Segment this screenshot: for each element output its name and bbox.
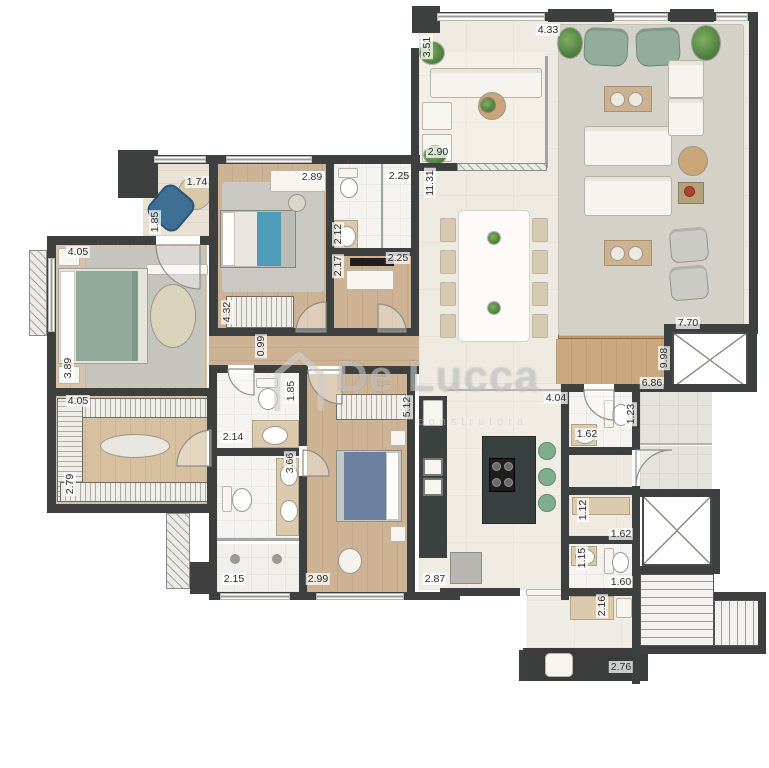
burner-4 <box>504 478 513 487</box>
burner-2 <box>504 462 513 471</box>
mbath-sink-2 <box>280 500 298 522</box>
mini-hall-floor <box>569 455 632 488</box>
master-bench <box>150 284 196 348</box>
living-armchair-gray-1 <box>669 226 710 263</box>
bedroom2-teal-blanket <box>257 212 281 266</box>
elevator-shaft-1 <box>672 332 748 388</box>
dimension-label: 3.51 <box>421 35 433 59</box>
ledge-bottom-left <box>166 513 190 589</box>
bath1-toilet <box>340 178 358 198</box>
sbath-toilet <box>612 552 629 573</box>
dimension-label: 4.32 <box>221 300 233 324</box>
door-gap-wc <box>584 384 614 392</box>
dimension-label: 2.25 <box>387 170 411 182</box>
column-top-right <box>670 9 714 22</box>
dimension-label: 3.89 <box>62 356 74 380</box>
bath1-glass <box>381 163 383 252</box>
dimension-label: 2.89 <box>300 171 324 183</box>
dimension-label: 1.23 <box>625 402 637 426</box>
window-bedroom2 <box>226 156 312 163</box>
mbath-toilet <box>232 488 252 512</box>
master-pillows <box>60 271 75 361</box>
wall-kitchen-bottom <box>440 588 520 596</box>
dining-chair-8 <box>532 314 548 338</box>
shower-head-2 <box>230 554 240 564</box>
dimension-label: 4.04 <box>544 392 568 404</box>
dining-chair-3 <box>440 282 456 306</box>
dimension-label: 1.62 <box>575 428 599 440</box>
core-hall-floor-1 <box>640 392 712 444</box>
closet-island-bench <box>100 434 170 458</box>
dimension-label: 1.62 <box>609 528 633 540</box>
dimension-label: 2.15 <box>222 573 246 585</box>
stool-3 <box>538 494 556 512</box>
dimension-label: 2.14 <box>221 431 245 443</box>
wall-entry-bedroom2 <box>209 155 218 336</box>
door-gap-suite2 <box>308 366 342 374</box>
dimension-label: 7.70 <box>676 317 700 329</box>
wall-gourmet-left <box>411 48 419 171</box>
stairs-run-2 <box>714 600 762 646</box>
dining-chair-4 <box>440 314 456 338</box>
dining-plant-1 <box>488 232 500 244</box>
lavabo-toilet-tank <box>256 378 278 388</box>
dimension-label: 2.25 <box>386 252 410 264</box>
living-sofa-2 <box>584 176 672 216</box>
suite2-pouf <box>338 548 362 574</box>
pouf-4 <box>628 246 643 261</box>
window-shower <box>220 593 290 600</box>
wall-bathcol-right <box>299 365 307 600</box>
dining-chair-7 <box>532 282 548 306</box>
wall-wc-bottom <box>561 447 640 455</box>
living-plant-right <box>692 26 720 60</box>
pouf-2 <box>628 92 643 107</box>
dining-table <box>458 210 530 342</box>
hall-divider-line <box>640 443 712 445</box>
kitchen-oven-1 <box>423 458 443 476</box>
gourmet-rail <box>457 163 547 171</box>
dimension-label: 1.60 <box>609 576 633 588</box>
wall-elevator1-right <box>748 324 757 392</box>
dimension-label: 9.98 <box>658 346 670 370</box>
suite2-blue-blanket <box>344 452 386 520</box>
suite2-pillows <box>386 452 399 520</box>
wall-storage-top <box>561 487 640 495</box>
wall-corridor-top <box>209 328 419 336</box>
dimension-label: 3.66 <box>284 451 296 475</box>
living-sofa-1 <box>584 126 672 166</box>
dimension-label: 2.16 <box>596 594 608 618</box>
door-gap-masterbath <box>299 446 307 476</box>
dimension-label: 2.79 <box>64 472 76 496</box>
kitchen-fridge <box>450 552 482 584</box>
shower-head-3 <box>272 554 282 564</box>
suite2-nightstand-2 <box>390 526 406 542</box>
dimension-label: 2.76 <box>609 661 633 673</box>
ac-ledge-left <box>29 250 47 336</box>
wall-elevator2-top <box>640 489 720 497</box>
kitchen-oven-2 <box>423 478 443 496</box>
bedroom2-wardrobe <box>226 296 294 328</box>
dimension-label: 2.87 <box>423 573 447 585</box>
sofa-module-2 <box>668 98 704 136</box>
dimension-label: 2.17 <box>332 254 344 278</box>
laundry-sink <box>545 653 573 677</box>
dimension-label: 5.12 <box>401 395 413 419</box>
kitchen-sink <box>423 400 443 426</box>
door-gap-core-entry <box>632 450 640 486</box>
dimension-label: 11.31 <box>424 168 436 198</box>
gourmet-table-plant <box>481 98 495 112</box>
closet-wardrobe-bottom <box>60 482 208 502</box>
dining-chair-6 <box>532 250 548 274</box>
shower-glass <box>217 538 299 541</box>
laundry-unit <box>616 598 632 618</box>
door-gap-master <box>156 236 200 245</box>
master-green-blanket <box>76 271 138 361</box>
dimension-label: 1.12 <box>577 498 589 522</box>
column-top-mid <box>548 9 612 22</box>
side-table-round <box>678 146 708 176</box>
dimension-label: 4.33 <box>536 24 560 36</box>
floor-plan: De Lucca construtora 1.741.852.892.252.1… <box>0 0 769 768</box>
laundry-door-leaf <box>526 589 564 596</box>
bedroom2-sheet <box>235 212 257 266</box>
pouf-3 <box>610 246 625 261</box>
elevator-shaft-2 <box>642 495 712 566</box>
bath1-toilet-tank <box>338 168 358 178</box>
core-hall-floor-2 <box>640 446 712 493</box>
door-gap-lavabo <box>228 365 254 373</box>
red-flowers <box>684 186 695 197</box>
window-living-1 <box>614 13 668 21</box>
tv-room-dresser <box>346 270 394 290</box>
stool-2 <box>538 468 556 486</box>
gourmet-chair-1 <box>422 102 452 130</box>
wall-bath1-living <box>411 155 419 336</box>
dining-chair-5 <box>532 218 548 242</box>
dining-plant-2 <box>488 302 500 314</box>
window-entry <box>154 156 206 163</box>
wall-core-bottom <box>632 646 766 654</box>
wall-stairs-top <box>640 566 720 574</box>
lavabo-toilet <box>258 388 278 410</box>
column-top-left <box>412 6 440 33</box>
suite2-nightstand-1 <box>390 430 406 446</box>
dimension-label: 0.99 <box>255 334 267 358</box>
kitchen-beam-line <box>447 389 561 391</box>
sofa-module-1 <box>668 60 704 98</box>
entry-console <box>146 264 208 275</box>
dimension-label: 6.86 <box>640 377 664 389</box>
suite2-wardrobe <box>336 394 406 420</box>
dimension-label: 1.74 <box>185 176 209 188</box>
dining-chair-2 <box>440 250 456 274</box>
bedroom2-pillow <box>222 212 235 266</box>
wall-stairs-right <box>758 592 766 652</box>
stairs-run-1 <box>640 574 714 646</box>
dimension-label: 1.15 <box>576 546 588 570</box>
dimension-label: 1.85 <box>285 379 297 403</box>
column-bottom-left <box>190 562 215 594</box>
dimension-label: 4.05 <box>66 395 90 407</box>
dimension-label: 2.90 <box>426 146 450 158</box>
lavabo-sink <box>262 426 288 445</box>
burner-3 <box>492 478 501 487</box>
window-gourmet <box>437 13 545 21</box>
mbath-toilet-tank <box>222 486 232 512</box>
dimension-label: 2.12 <box>332 222 344 246</box>
wall-laundry-stub <box>519 650 529 681</box>
bedroom2-chair <box>288 194 306 212</box>
dimension-label: 4.05 <box>66 246 90 258</box>
window-living-2 <box>716 13 748 21</box>
dining-chair-1 <box>440 218 456 242</box>
dimension-label: 1.85 <box>149 210 161 234</box>
wall-closet-bottom <box>47 504 215 513</box>
window-suite2 <box>316 593 404 600</box>
dimension-label: 2.99 <box>306 573 330 585</box>
living-armchair-gray-2 <box>669 264 710 301</box>
living-plant-left <box>558 28 582 58</box>
window-master <box>48 258 55 332</box>
glass-partition-gourmet <box>545 56 548 168</box>
stool-1 <box>538 442 556 460</box>
burner-1 <box>492 462 501 471</box>
wall-elevator2-right <box>712 489 720 574</box>
wall-lavabo-top <box>209 365 307 373</box>
pouf-1 <box>610 92 625 107</box>
wall-right-outer <box>749 12 758 334</box>
living-armchair-green-1 <box>583 27 629 67</box>
